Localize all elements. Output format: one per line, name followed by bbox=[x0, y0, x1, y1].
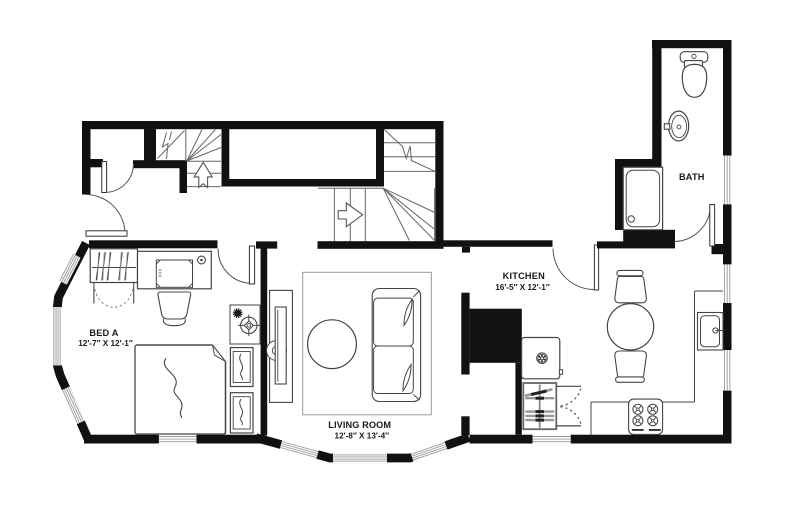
svg-text:12′-7″ X 12′-1″: 12′-7″ X 12′-1″ bbox=[78, 339, 133, 348]
svg-text:16′-5″ X 12′-1″: 16′-5″ X 12′-1″ bbox=[495, 283, 550, 292]
svg-text:BATH: BATH bbox=[679, 172, 705, 182]
svg-text:BED A: BED A bbox=[89, 328, 118, 338]
svg-text:12′-8″ X 13′-4″: 12′-8″ X 13′-4″ bbox=[335, 432, 390, 441]
svg-text:LIVING ROOM: LIVING ROOM bbox=[328, 420, 391, 430]
svg-text:KITCHEN: KITCHEN bbox=[503, 271, 545, 281]
